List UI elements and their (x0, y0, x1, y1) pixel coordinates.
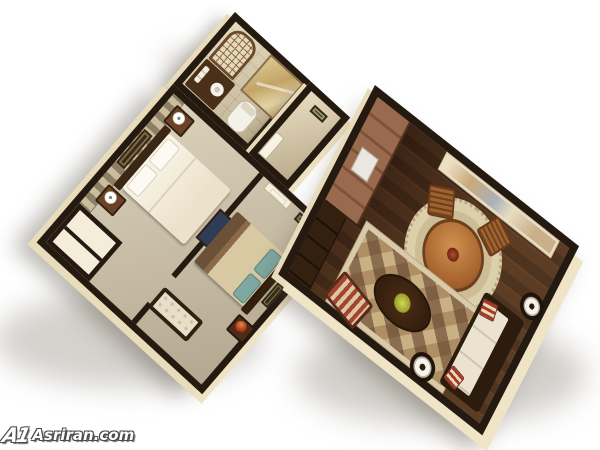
watermark-text: Asriran.com (32, 426, 134, 444)
dining-chair (427, 184, 455, 220)
floorplan-render: A1 Asriran.com (0, 0, 600, 450)
kitchen-sink (351, 147, 379, 183)
tufted-bench (147, 287, 203, 343)
entry-art-frame (309, 105, 328, 123)
watermark: A1 Asriran.com (3, 423, 134, 447)
nightstand-red-lamp (226, 314, 256, 345)
watermark-logo: A1 (0, 423, 31, 447)
